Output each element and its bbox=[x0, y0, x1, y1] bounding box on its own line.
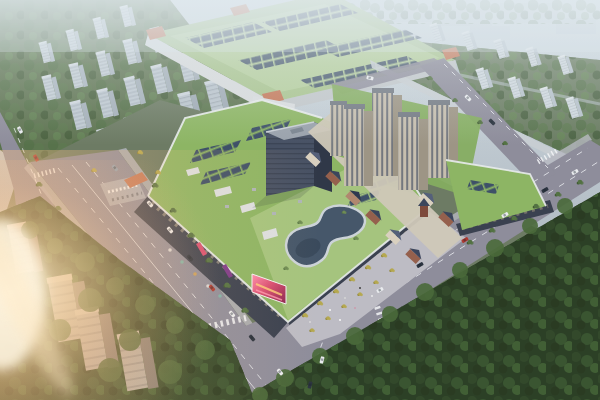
rendering-canvas bbox=[0, 0, 600, 400]
sun-flare bbox=[0, 150, 320, 400]
architectural-rendering bbox=[0, 0, 600, 400]
horizon-haze bbox=[0, 0, 600, 52]
